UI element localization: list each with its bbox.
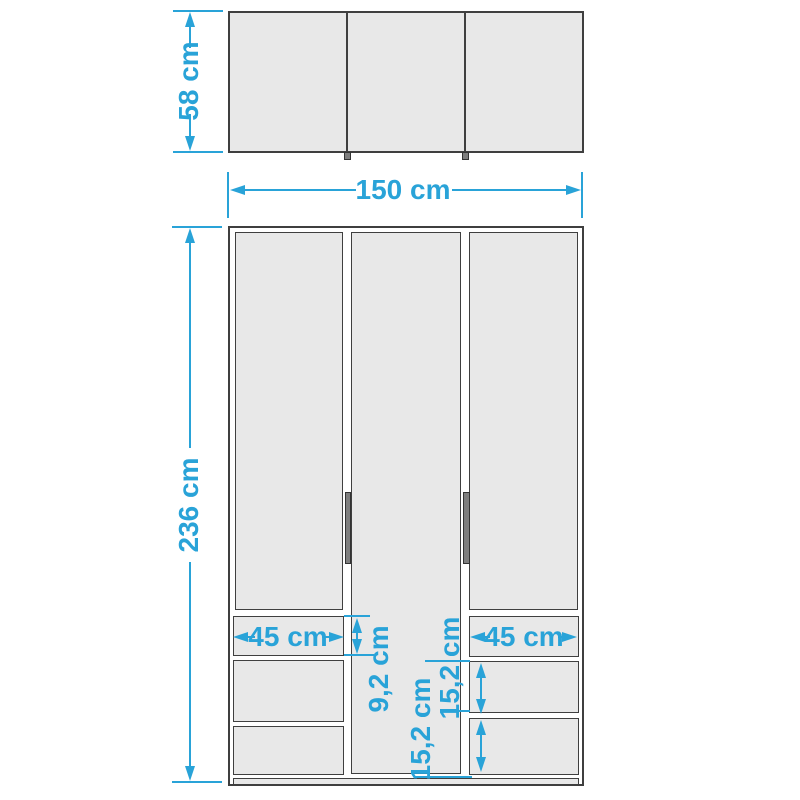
right-drawer-width-label: 45 cm bbox=[484, 623, 563, 651]
height-dimension-label: 236 cm bbox=[175, 458, 203, 553]
middle-drawer-height-label: 15,2 cm bbox=[436, 617, 464, 720]
depth-dimension-label: 58 cm bbox=[175, 41, 203, 120]
arrowhead-down bbox=[476, 757, 486, 772]
top-drawer-height-label: 9,2 cm bbox=[365, 625, 393, 712]
width-dimension-label: 150 cm bbox=[356, 176, 451, 204]
left-drawer-width-label: 45 cm bbox=[248, 623, 327, 651]
dimension-line bbox=[480, 732, 482, 759]
bottom-drawer-height-label: 15,2 cm bbox=[407, 678, 435, 781]
wardrobe-dimension-diagram: 58 cm 150 cm 236 cm bbox=[0, 0, 800, 800]
bottom-drawer-height-dimension: 15,2 cm bbox=[0, 0, 800, 800]
